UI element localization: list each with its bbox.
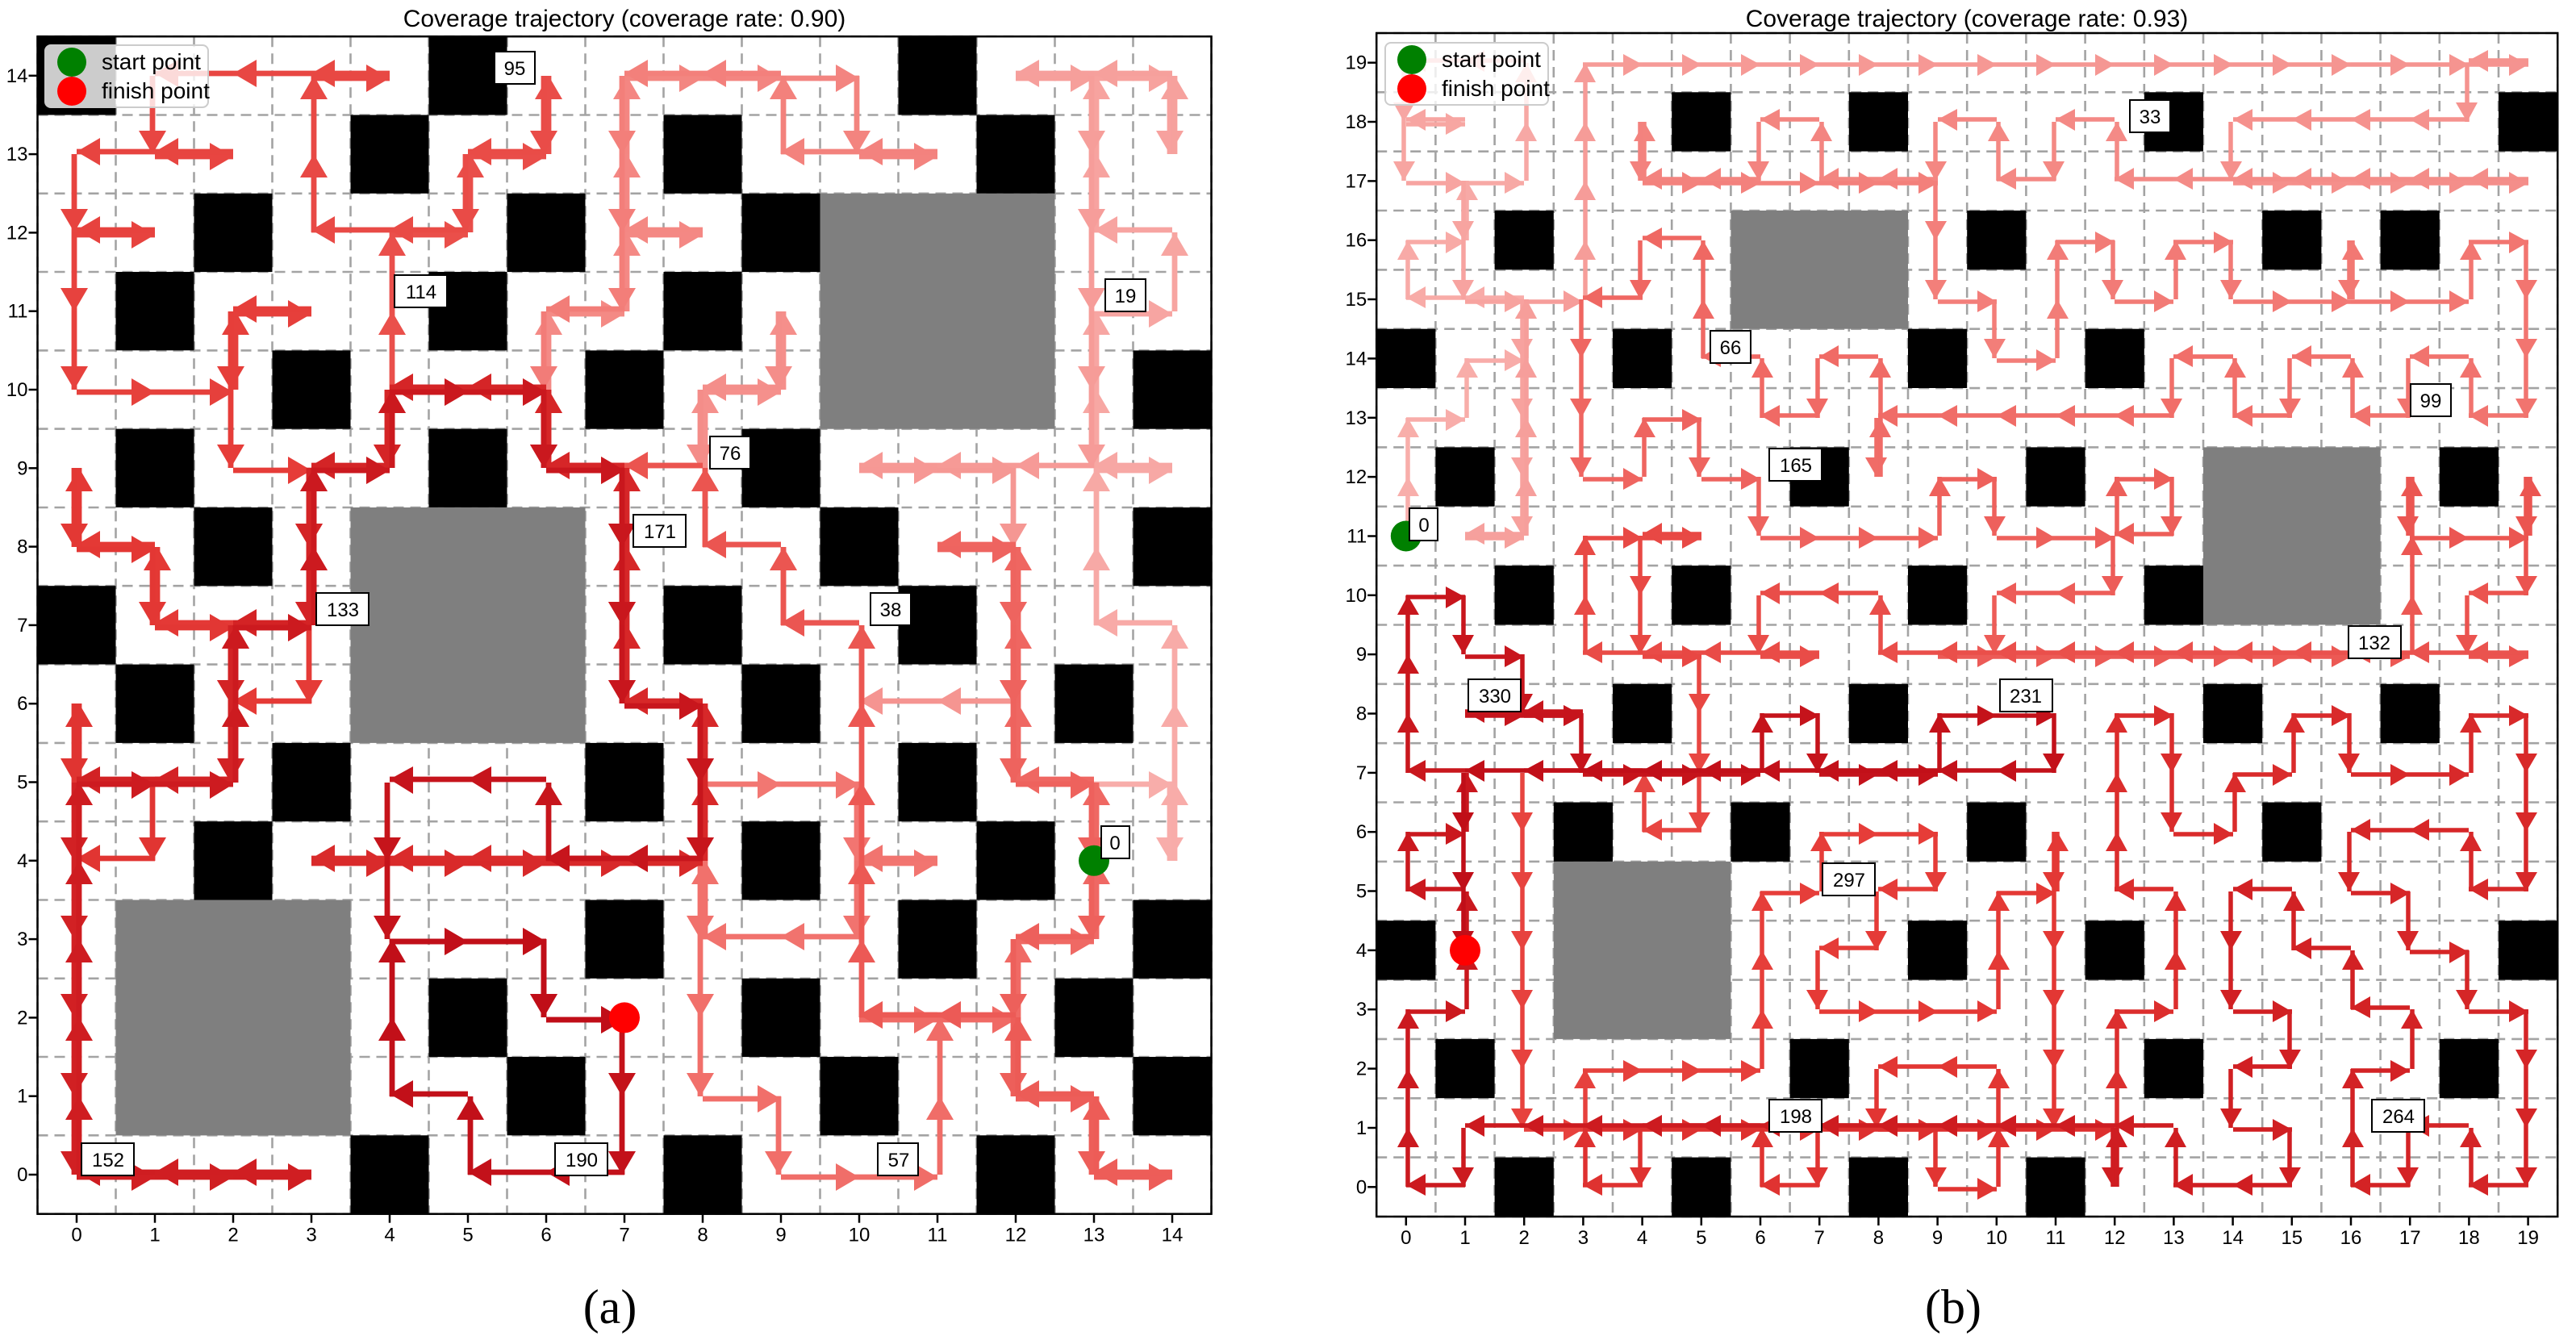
svg-text:18: 18 — [2458, 1227, 2480, 1249]
svg-text:330: 330 — [1479, 686, 1511, 708]
svg-text:0: 0 — [1418, 515, 1429, 536]
svg-text:15: 15 — [2281, 1227, 2303, 1249]
svg-text:12: 12 — [2104, 1227, 2126, 1249]
svg-text:finish point: finish point — [102, 78, 210, 103]
svg-text:95: 95 — [504, 58, 526, 80]
svg-text:297: 297 — [1833, 870, 1865, 891]
svg-text:6: 6 — [541, 1225, 551, 1246]
svg-text:0: 0 — [1109, 833, 1120, 854]
svg-text:17: 17 — [2399, 1227, 2421, 1249]
svg-text:3: 3 — [17, 929, 27, 950]
svg-text:19: 19 — [1115, 286, 1137, 307]
svg-text:13: 13 — [1345, 407, 1367, 429]
svg-text:6: 6 — [17, 693, 27, 715]
svg-text:(a): (a) — [583, 1280, 637, 1334]
svg-text:0: 0 — [1356, 1176, 1367, 1198]
svg-text:12: 12 — [6, 222, 28, 244]
svg-text:1: 1 — [1356, 1117, 1367, 1139]
svg-text:1: 1 — [1459, 1227, 1470, 1249]
svg-text:start point: start point — [102, 49, 201, 74]
svg-text:171: 171 — [644, 521, 676, 543]
svg-text:4: 4 — [17, 850, 27, 872]
svg-text:5: 5 — [1696, 1227, 1706, 1249]
svg-text:165: 165 — [1780, 455, 1812, 477]
svg-text:10: 10 — [1985, 1227, 2007, 1249]
svg-text:5: 5 — [462, 1225, 473, 1246]
svg-text:9: 9 — [775, 1225, 786, 1246]
svg-text:2: 2 — [17, 1007, 27, 1029]
svg-text:8: 8 — [697, 1225, 708, 1246]
svg-text:8: 8 — [1356, 703, 1367, 725]
svg-text:5: 5 — [17, 772, 27, 794]
svg-text:13: 13 — [6, 144, 28, 165]
svg-text:10: 10 — [6, 379, 28, 401]
svg-text:1: 1 — [17, 1086, 27, 1108]
svg-text:11: 11 — [2046, 1227, 2066, 1249]
svg-text:6: 6 — [1755, 1227, 1765, 1249]
svg-text:12: 12 — [1005, 1225, 1027, 1246]
svg-text:7: 7 — [1356, 762, 1367, 784]
svg-text:4: 4 — [1356, 940, 1367, 962]
svg-text:14: 14 — [1345, 348, 1367, 369]
svg-text:3: 3 — [1356, 999, 1367, 1021]
svg-text:3: 3 — [1578, 1227, 1589, 1249]
svg-text:5: 5 — [1356, 881, 1367, 903]
svg-text:0: 0 — [1401, 1227, 1411, 1249]
svg-text:0: 0 — [17, 1164, 27, 1186]
svg-text:198: 198 — [1780, 1106, 1812, 1128]
svg-text:7: 7 — [619, 1225, 629, 1246]
svg-text:33: 33 — [2140, 106, 2161, 128]
svg-text:132: 132 — [2358, 633, 2390, 654]
svg-text:2: 2 — [228, 1225, 238, 1246]
svg-text:13: 13 — [1083, 1225, 1105, 1246]
svg-text:1: 1 — [149, 1225, 160, 1246]
svg-text:16: 16 — [1345, 230, 1367, 252]
svg-text:9: 9 — [1932, 1227, 1943, 1249]
svg-text:99: 99 — [2420, 390, 2442, 412]
svg-text:14: 14 — [2222, 1227, 2244, 1249]
svg-text:16: 16 — [2340, 1227, 2362, 1249]
svg-text:190: 190 — [566, 1150, 598, 1171]
svg-text:18: 18 — [1345, 111, 1367, 133]
svg-text:9: 9 — [17, 457, 27, 479]
svg-text:4: 4 — [384, 1225, 395, 1246]
svg-text:3: 3 — [306, 1225, 316, 1246]
svg-text:14: 14 — [6, 65, 28, 87]
svg-text:152: 152 — [92, 1150, 124, 1171]
svg-text:finish point: finish point — [1442, 76, 1550, 101]
svg-text:9: 9 — [1356, 644, 1367, 666]
svg-text:133: 133 — [327, 599, 359, 621]
svg-text:13: 13 — [2163, 1227, 2185, 1249]
svg-text:Coverage trajectory (coverage: Coverage trajectory (coverage rate: 0.93… — [1746, 6, 2189, 32]
svg-text:7: 7 — [17, 615, 27, 637]
svg-text:114: 114 — [406, 282, 436, 303]
svg-text:15: 15 — [1345, 289, 1367, 311]
svg-text:11: 11 — [8, 301, 28, 323]
svg-text:start point: start point — [1442, 47, 1541, 72]
svg-text:19: 19 — [1345, 52, 1367, 74]
svg-text:2: 2 — [1356, 1058, 1367, 1080]
svg-text:8: 8 — [1873, 1227, 1884, 1249]
svg-text:8: 8 — [17, 536, 27, 558]
svg-text:57: 57 — [888, 1150, 910, 1171]
svg-text:0: 0 — [71, 1225, 81, 1246]
svg-text:10: 10 — [1345, 585, 1367, 607]
svg-text:7: 7 — [1814, 1227, 1825, 1249]
svg-text:38: 38 — [880, 599, 902, 621]
svg-text:231: 231 — [2010, 686, 2042, 708]
svg-text:264: 264 — [2382, 1106, 2415, 1128]
svg-text:17: 17 — [1345, 170, 1367, 192]
svg-text:(b): (b) — [1925, 1280, 1981, 1334]
svg-text:12: 12 — [1345, 466, 1367, 488]
svg-text:11: 11 — [1346, 526, 1367, 548]
svg-text:76: 76 — [720, 443, 741, 465]
svg-text:66: 66 — [1720, 337, 1742, 359]
svg-text:Coverage trajectory (coverage: Coverage trajectory (coverage rate: 0.90… — [403, 6, 846, 32]
svg-text:19: 19 — [2517, 1227, 2539, 1249]
svg-text:11: 11 — [928, 1225, 948, 1246]
svg-text:14: 14 — [1162, 1225, 1184, 1246]
svg-text:6: 6 — [1356, 821, 1367, 843]
svg-text:10: 10 — [849, 1225, 870, 1246]
svg-text:4: 4 — [1637, 1227, 1647, 1249]
svg-text:2: 2 — [1519, 1227, 1530, 1249]
